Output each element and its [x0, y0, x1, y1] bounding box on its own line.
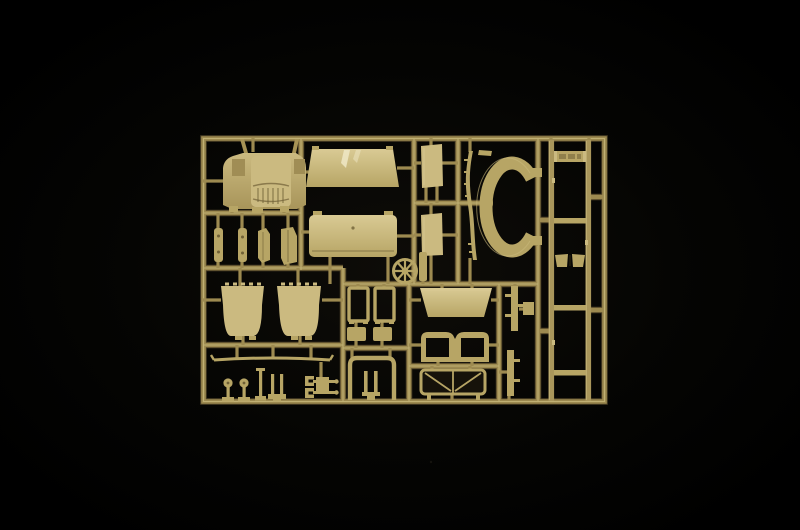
rear-center-dot — [351, 226, 354, 229]
gate-left-foot-a — [349, 320, 354, 324]
roof-tab-left — [312, 146, 319, 150]
pin-stem — [259, 368, 262, 397]
stalk-a-base — [222, 397, 234, 402]
fork-foot — [273, 398, 281, 402]
part-door-panel-lower — [421, 213, 443, 256]
part-bracket-strip-b — [238, 228, 247, 262]
cluster-ball-br — [334, 390, 338, 394]
gate-left-foot-b — [363, 320, 368, 324]
dust-speck — [430, 461, 432, 463]
cm3-left — [555, 254, 568, 267]
rstrip-l-nub-1 — [514, 359, 520, 362]
rollbar-prong-base — [362, 392, 380, 396]
part-hinge-bracket-a — [258, 228, 270, 263]
rollbar-foot — [367, 396, 375, 400]
fork-prong-left — [271, 374, 274, 396]
part-steering-wheel — [394, 260, 417, 283]
part-seat-back-left — [221, 284, 264, 340]
part-seat-back-right — [277, 284, 321, 340]
roof-body — [306, 149, 399, 187]
strip-a-hole-1 — [217, 235, 220, 238]
cluster-arm-bl — [313, 391, 316, 394]
strip-a-body — [214, 228, 223, 262]
hinge-a-body — [258, 228, 270, 263]
stalk-b-hole — [243, 382, 246, 385]
cluster-ball-tr — [334, 379, 338, 383]
cm1-cap-left — [554, 151, 557, 162]
cluster-arm-tl — [313, 380, 316, 383]
ladder-crossmember-3 — [555, 254, 585, 267]
part-bracket-strip-a — [214, 228, 223, 262]
ladder-bracket-b — [585, 240, 588, 245]
rollbar-prong-left — [364, 371, 368, 394]
cm1-slot-2 — [568, 154, 575, 159]
strip-b-body — [238, 228, 247, 262]
hinge-b-body — [281, 227, 297, 265]
hood-bottom-tab-right — [280, 206, 289, 212]
ladder-bracket-a — [552, 178, 555, 183]
hood-shoulder-right — [294, 159, 305, 174]
cluster-arm-br — [329, 391, 335, 394]
sprue-photo — [0, 0, 800, 530]
bench-leg-left — [427, 394, 431, 400]
c-ring-serif-top — [529, 168, 542, 177]
part-cab-rear-panel — [309, 211, 397, 257]
rstrip-u-nub-l1 — [505, 294, 511, 297]
rollbar-prong-right — [374, 371, 378, 394]
fork-prong-right — [280, 374, 283, 396]
seat-right-foot-a — [291, 336, 298, 340]
ladder-crossmember-2 — [554, 218, 586, 224]
rstrip-u-plate — [523, 302, 534, 315]
part-base-plate-left — [347, 327, 366, 341]
rstrip-u-nub-l2 — [505, 314, 511, 317]
part-bench-seat-frame — [421, 370, 485, 400]
part-door-panel-upper — [421, 144, 443, 188]
strip-a-hole-2 — [217, 251, 220, 254]
ladder-crossmember-5 — [554, 370, 586, 376]
ladder-bracket-c — [552, 340, 555, 345]
stalk-b-base — [238, 397, 250, 402]
stalk-b-stem — [243, 387, 246, 398]
part-cargo-bed-panel — [420, 288, 492, 317]
cargo-body — [420, 288, 492, 317]
blade-top-wing — [478, 150, 492, 156]
rstrip-u-body — [511, 286, 518, 331]
c-ring-serif-bottom — [529, 236, 542, 245]
gate-right-foot-b — [389, 320, 394, 324]
seat-right-body — [277, 286, 321, 336]
cm1-cap-right — [583, 151, 586, 162]
roof-tab-right — [386, 146, 393, 150]
rstrip-l-nub-2 — [514, 379, 520, 382]
ladder-crossmember-4 — [554, 305, 586, 311]
cm1-slot-1 — [559, 154, 566, 159]
part-cab-roof-panel — [306, 146, 399, 187]
cluster-arm-tr — [329, 380, 335, 383]
part-hinge-bracket-b — [281, 227, 297, 265]
pin-base — [255, 396, 266, 401]
stalk-a-stem — [227, 387, 230, 398]
bench-leg-right — [476, 394, 480, 400]
rstrip-l-body — [507, 350, 514, 396]
photo-stage — [0, 0, 800, 530]
cm3-right — [572, 254, 585, 267]
strip-b-hole-1 — [241, 236, 244, 239]
stalk-a-hole — [227, 382, 230, 385]
strip-b-hole-2 — [241, 252, 244, 255]
seat-left-foot-b — [249, 336, 256, 340]
hood-bottom-tab-left — [229, 206, 238, 212]
cm1-slot-3 — [577, 154, 581, 159]
seat-left-body — [221, 286, 264, 336]
gate-right-foot-a — [375, 320, 380, 324]
part-base-plate-right — [373, 327, 392, 341]
hood-shoulder-left — [232, 159, 245, 176]
ladder-crossmember-1 — [554, 151, 586, 162]
part-small-strip-by-wheel — [419, 252, 427, 281]
cluster-block — [316, 377, 329, 394]
hood-bottom-tab-mid — [252, 207, 263, 213]
seat-right-foot-b — [305, 336, 312, 340]
seat-left-foot-a — [235, 336, 242, 340]
